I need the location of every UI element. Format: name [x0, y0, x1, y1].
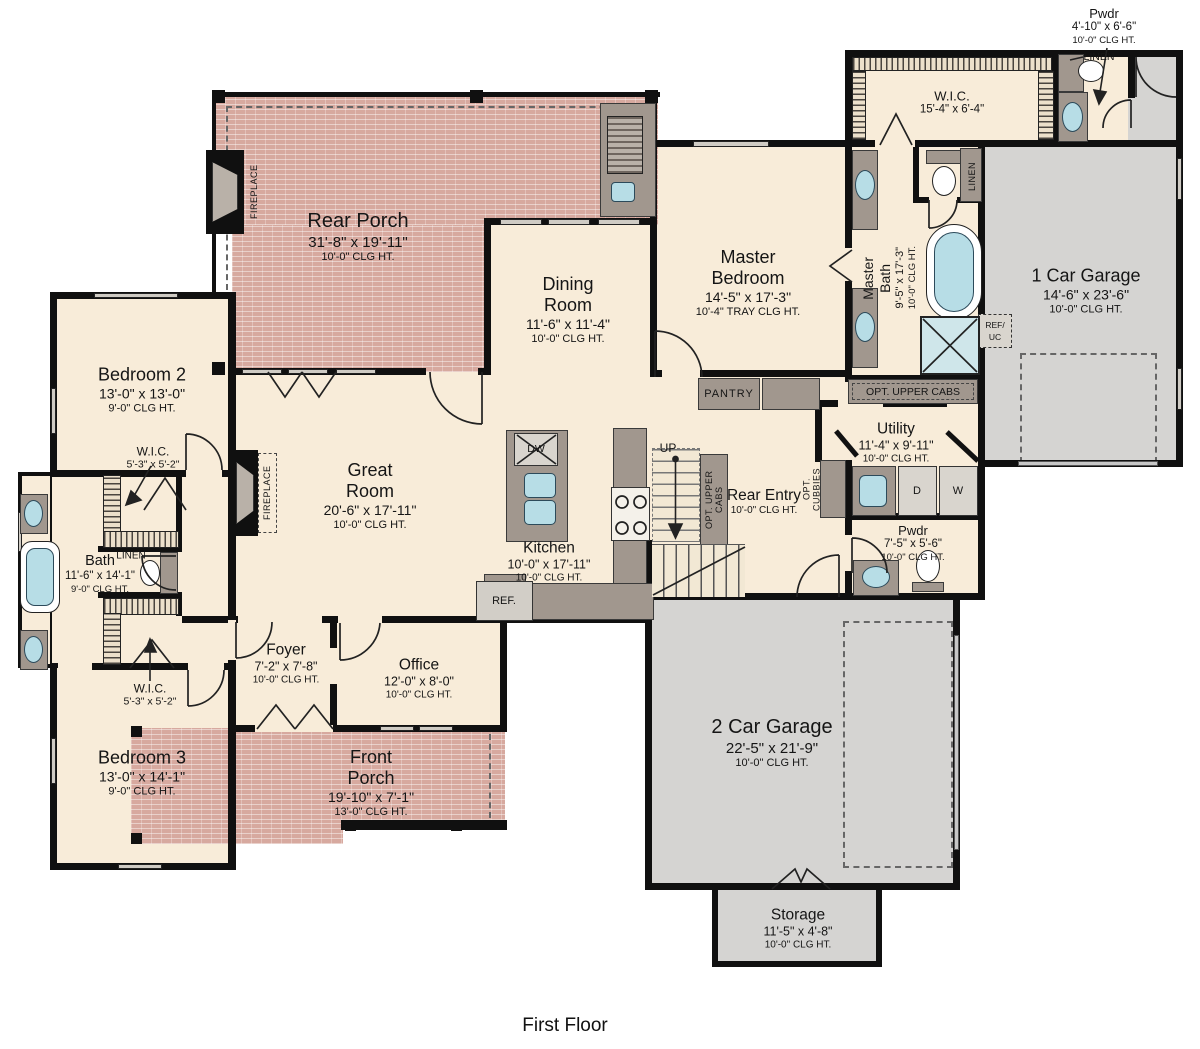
room-label-storage: Storage 11'-5" x 4'-8" 10'-0" CLG HT.: [763, 907, 832, 952]
up-label: UP: [660, 441, 677, 455]
room-ceiling: 10'-0" CLG HT.: [253, 675, 320, 687]
storage-doors: [772, 869, 830, 889]
door-swing: [797, 555, 839, 597]
room-label-great-room: Great Room 20'-6" x 17'-11" 10'-0" CLG H…: [324, 460, 417, 532]
room-dims: 15'-4" x 6'-4": [920, 104, 984, 118]
room-label-pwdr-upper: Pwdr 4'-10" x 6'-6" 10'-0" CLG HT.: [1072, 6, 1136, 46]
room-dims: 11'-5" x 4'-8": [763, 925, 832, 940]
room-label-1car-garage: 1 Car Garage 14'-6" x 23'-6" 10'-0" CLG …: [1031, 266, 1140, 317]
door-swing: [142, 556, 176, 590]
room-dims: 10'-0" x 17'-11": [508, 558, 591, 573]
room-label-rear-entry: Rear Entry 10'-0" CLG HT.: [724, 487, 804, 517]
room-label-foyer: Foyer 7'-2" x 7'-8" 10'-0" CLG HT.: [253, 642, 320, 687]
room-dims: 20'-6" x 17'-11": [324, 502, 417, 519]
room-ceiling: 10'-0" CLG HT.: [508, 573, 591, 585]
room-name: W.I.C.: [920, 89, 984, 104]
stair-arrow-head: [669, 524, 682, 538]
room-ceiling: 10'-0" CLG HT.: [724, 505, 804, 517]
room-label-master-wic: W.I.C. 15'-4" x 6'-4": [920, 89, 984, 118]
shower-x: [923, 319, 977, 372]
range-burner: [616, 496, 628, 508]
pocket-door: [830, 250, 852, 282]
room-dims: 7'-5" x 5'-6": [881, 538, 944, 552]
room-ceiling: 10'-0" CLG HT.: [384, 690, 454, 702]
room-name: Foyer: [253, 642, 320, 660]
room-ceiling: 9'-0" CLG HT.: [98, 785, 186, 798]
room-label-utility: Utility 11'-4" x 9'-11" 10'-0" CLG HT.: [858, 421, 933, 466]
room-name: Dining Room: [524, 274, 612, 316]
door-swing: [186, 434, 222, 470]
room-ceiling: 10'-0" CLG HT.: [711, 757, 832, 770]
room-ceiling: 10'-0" CLG HT.: [524, 333, 612, 346]
room-name: Master Bedroom: [693, 247, 803, 289]
dishwasher-label: DW: [527, 443, 545, 455]
room-name: Kitchen: [508, 540, 591, 558]
linen-label-tick: [1070, 57, 1083, 60]
french-doors: [257, 705, 333, 729]
room-ceiling: 10'-0" CLG HT.: [303, 251, 413, 264]
room-label-dining: Dining Room 11'-6" x 11'-4" 10'-0" CLG H…: [524, 274, 612, 346]
room-name: Front Porch: [331, 747, 411, 789]
room-dims: 11'-6" x 11'-4": [524, 316, 612, 333]
room-dims: 31'-8" x 19'-11": [303, 233, 413, 251]
chamfer-wall: [836, 431, 857, 456]
ref-uc-label-2: UC: [989, 332, 1001, 342]
door-swing: [1103, 100, 1131, 128]
french-doors: [268, 372, 336, 397]
closet-door: [880, 114, 912, 145]
room-name: Pwdr: [1072, 6, 1136, 21]
room-name: Bath: [877, 264, 893, 293]
door-swing: [1136, 57, 1176, 97]
room-name: Pwdr: [881, 523, 944, 538]
room-name: Bedroom 3: [98, 748, 186, 769]
room-dims: 13'-0" x 13'-0": [98, 386, 186, 403]
linen-label: LINEN: [1084, 51, 1115, 63]
room-dims: 22'-5" x 21'-9": [711, 739, 832, 757]
floor-plan: Rear Porch 31'-8" x 19'-11" 10'-0" CLG H…: [0, 0, 1200, 1049]
room-name: 2 Car Garage: [711, 716, 832, 740]
room-label-wic-bedroom2: W.I.C. 5'-3" x 5'-2": [127, 445, 180, 472]
room-dims: 11'-4" x 9'-11": [858, 439, 933, 454]
wic-label-arrow-head: [145, 639, 156, 652]
linen-label-vertical: LINEN: [964, 150, 980, 202]
room-label-kitchen: Kitchen 10'-0" x 17'-11" 10'-0" CLG HT.: [508, 540, 591, 585]
fireplace-label: FIREPLACE: [246, 152, 262, 232]
room-ceiling: 10'-0" CLG HT.: [858, 454, 933, 466]
room-label-2car-garage: 2 Car Garage 22'-5" x 21'-9" 10'-0" CLG …: [711, 716, 832, 770]
range-burner: [634, 522, 646, 534]
room-ceiling: 10'-0" CLG HT.: [881, 552, 944, 563]
room-label-master-bedroom: Master Bedroom 14'-5" x 17'-3" 10'-4" TR…: [693, 247, 803, 319]
room-ceiling: 10'-0" CLG HT.: [1031, 303, 1140, 316]
opt-cubbies-label: OPT. CUBBIES: [804, 460, 819, 518]
room-dims: 5'-3" x 5'-2": [124, 696, 177, 708]
room-label-bedroom3: Bedroom 3 13'-0" x 14'-1" 9'-0" CLG HT.: [98, 748, 186, 799]
room-ceiling: 13'-0" CLG HT.: [328, 806, 414, 819]
room-dims: 4'-10" x 6'-6": [1072, 21, 1136, 35]
range-burner: [634, 496, 646, 508]
room-ceiling: 10'-4" TRAY CLG HT.: [693, 306, 803, 319]
ref-uc-label-1: REF/: [985, 320, 1004, 330]
room-ceiling: 10'-0" CLG HT.: [1072, 35, 1136, 46]
room-name: Bedroom 2: [98, 365, 186, 386]
linen-label: LINEN: [116, 551, 145, 562]
door-symbols-layer: [0, 0, 1200, 1049]
room-dims: 11'-6" x 14'-1": [65, 570, 135, 584]
room-name: Great Room: [326, 460, 414, 502]
room-name: Utility: [858, 421, 933, 439]
room-name: W.I.C.: [124, 682, 177, 696]
room-ceiling: 9'-0" CLG HT.: [98, 402, 186, 415]
room-label-bedroom2: Bedroom 2 13'-0" x 13'-0" 9'-0" CLG HT.: [98, 365, 186, 416]
room-name: Master: [860, 257, 876, 300]
room-dims: 14'-5" x 17'-3": [693, 289, 803, 306]
room-label-pwdr-rear: Pwdr 7'-5" x 5'-6" 10'-0" CLG HT.: [881, 523, 944, 563]
room-dims: 13'-0" x 14'-1": [98, 769, 186, 786]
room-ceiling: 9'-0" CLG HT.: [65, 584, 135, 595]
room-label-office: Office 12'-0" x 8'-0" 10'-0" CLG HT.: [384, 657, 454, 702]
door-swing: [929, 200, 957, 228]
range-burner: [616, 522, 628, 534]
plan-caption: First Floor: [522, 1015, 608, 1037]
room-name: 1 Car Garage: [1031, 266, 1140, 287]
room-label-master-bath: Master Bath 9'-5" x 17'-3" 10'-0" CLG HT…: [860, 218, 918, 338]
door-swing: [655, 331, 702, 377]
room-name: Rear Entry: [724, 487, 804, 505]
door-swing: [340, 623, 380, 660]
room-name: W.I.C.: [127, 445, 180, 459]
room-name: Storage: [763, 907, 832, 925]
room-dims: 14'-6" x 23'-6": [1031, 287, 1140, 304]
washer-label: W: [953, 485, 963, 497]
door-swing: [430, 372, 482, 424]
wic-label-arrow-head: [126, 491, 141, 505]
room-ceiling: 10'-0" CLG HT.: [907, 246, 918, 309]
room-dims: 12'-0" x 8'-0": [384, 675, 454, 690]
fireplace-label: FIREPLACE: [259, 455, 275, 531]
room-dims: 9'-5" x 17'-3": [894, 247, 906, 309]
room-label-wic-bedroom3: W.I.C. 5'-3" x 5'-2": [124, 682, 177, 709]
linen-label-arrow-head: [1094, 90, 1106, 104]
opt-upper-cabs-vertical-label: OPT. UPPER CABS: [703, 458, 725, 542]
opt-upper-cabs-label: OPT. UPPER CABS: [866, 386, 960, 398]
room-label-rear-porch: Rear Porch 31'-8" x 19'-11" 10'-0" CLG H…: [303, 210, 413, 264]
room-dims: 19'-10" x 7'-1": [328, 789, 414, 806]
room-ceiling: 10'-0" CLG HT.: [763, 940, 832, 952]
door-swing: [188, 670, 224, 706]
dryer-label: D: [913, 485, 921, 497]
room-label-front-porch: Front Porch 19'-10" x 7'-1" 13'-0" CLG H…: [328, 747, 414, 819]
closet-bifold: [144, 478, 186, 510]
pantry-label: PANTRY: [704, 388, 754, 400]
room-dims: 7'-2" x 7'-8": [253, 660, 320, 675]
room-name: Rear Porch: [303, 210, 413, 234]
room-dims: 5'-3" x 5'-2": [127, 459, 180, 471]
room-ceiling: 10'-0" CLG HT.: [324, 519, 417, 532]
stair-cut-line: [653, 547, 745, 595]
refrigerator-label: REF.: [492, 595, 516, 607]
chamfer-wall: [947, 432, 978, 461]
room-name: Office: [384, 657, 454, 675]
